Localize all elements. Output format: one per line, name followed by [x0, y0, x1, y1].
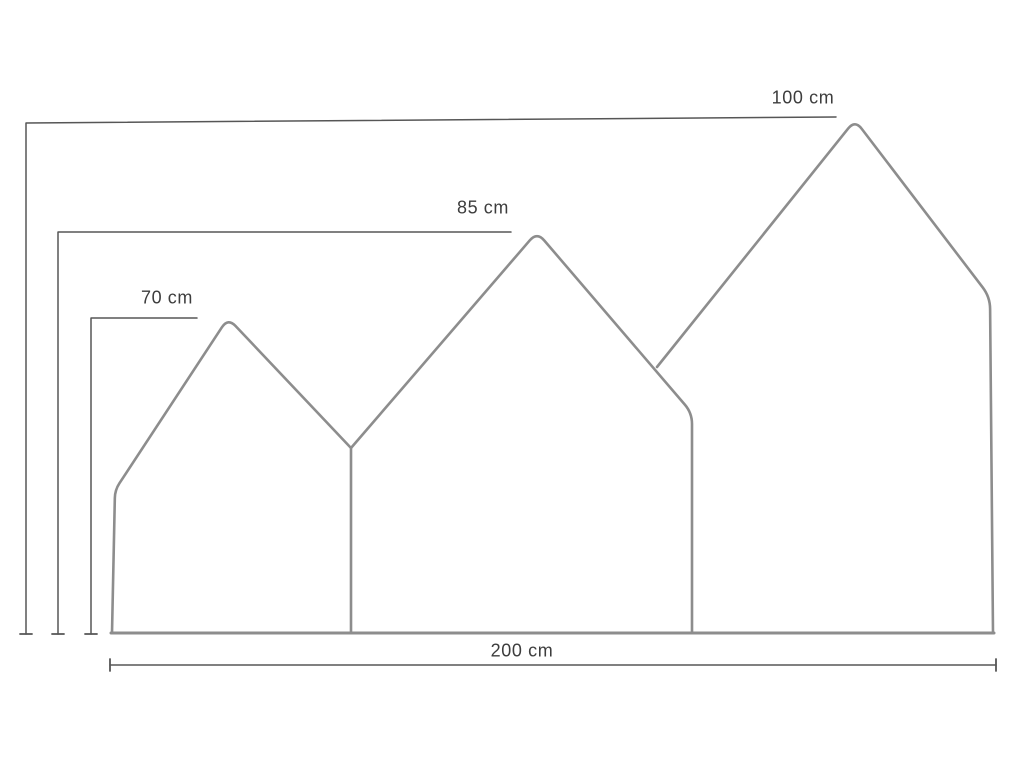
width-label-200cm: 200 cm: [491, 641, 554, 662]
middle-panel-outline: [351, 236, 692, 633]
dim-height-70: [91, 318, 197, 634]
dimension-diagram: 100 cm 85 cm 70 cm 200 cm: [0, 0, 1024, 768]
height-label-100cm: 100 cm: [772, 88, 835, 109]
large-panel-outline: [657, 124, 993, 633]
dim-height-85: [58, 232, 511, 634]
dim-height-100: [26, 117, 836, 634]
small-panel-outline: [112, 322, 351, 633]
height-label-85cm: 85 cm: [457, 198, 509, 219]
height-label-70cm: 70 cm: [141, 288, 193, 309]
